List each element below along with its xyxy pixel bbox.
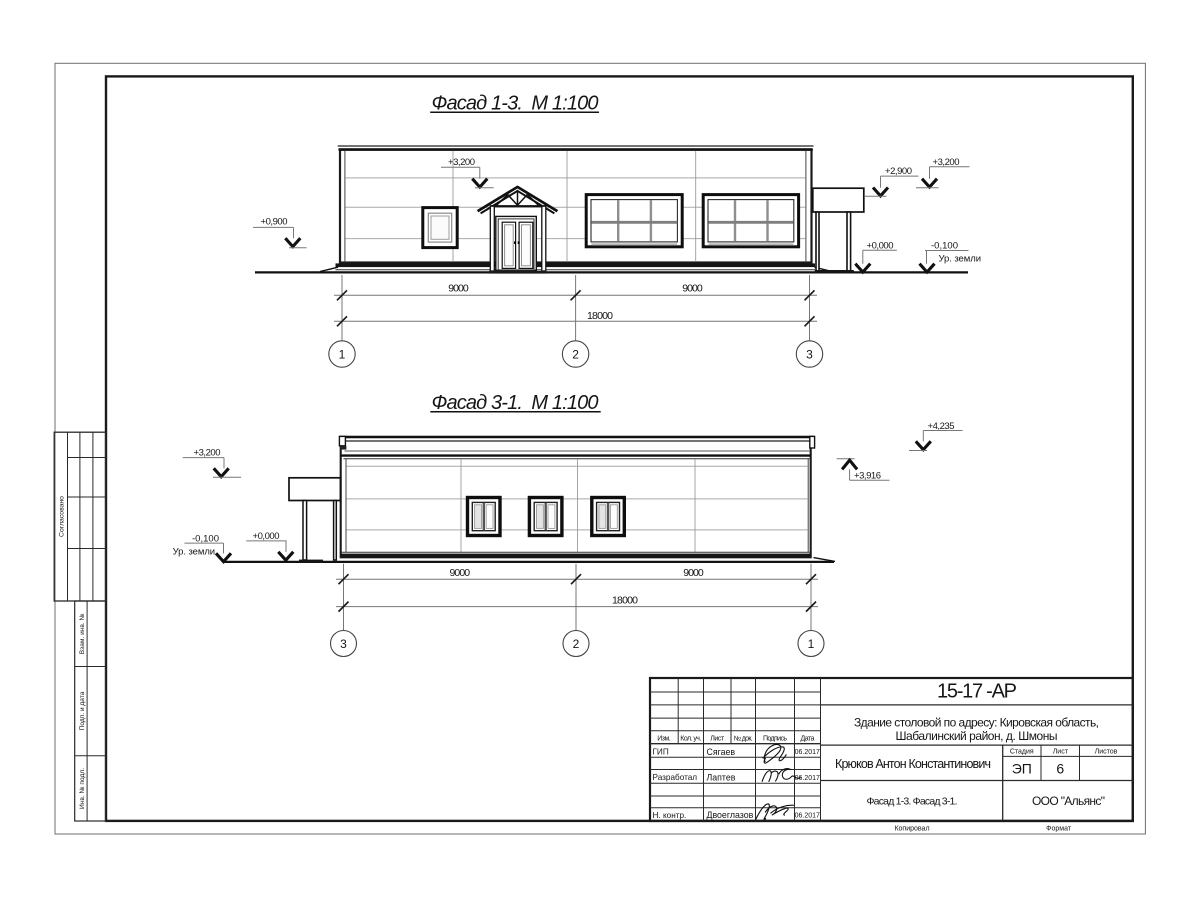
svg-text:Копировал: Копировал [894,826,929,833]
svg-text:2: 2 [573,637,580,651]
svg-text:18000: 18000 [612,595,638,607]
svg-text:Двоеглазов: Двоеглазов [707,810,754,820]
svg-text:Подпись: Подпись [763,736,787,743]
svg-text:Стадия: Стадия [1010,748,1034,755]
svg-text:ГИП: ГИП [653,748,669,757]
svg-text:Ур. земли: Ур. земли [173,547,216,558]
svg-text:Крюков Антон Константинович: Крюков Антон Константинович [835,757,991,771]
svg-text:Сягаев: Сягаев [707,747,736,757]
svg-text:2: 2 [572,347,579,361]
svg-text:06.2017: 06.2017 [795,749,820,756]
svg-text:ЭП: ЭП [1012,761,1032,777]
svg-text:Здание столовой по адресу: Кир: Здание столовой по адресу: Кировская обл… [854,715,1099,729]
svg-text:Н. контр.: Н. контр. [653,811,687,820]
svg-text:06.2017: 06.2017 [795,813,820,820]
svg-text:+0,900: +0,900 [261,217,288,228]
svg-text:1: 1 [339,347,346,361]
svg-text:Шабалинский район, д. Шмоны: Шабалинский район, д. Шмоны [896,729,1058,743]
svg-text:Фасад 1-3. Фасад 3-1.: Фасад 1-3. Фасад 3-1. [867,796,958,808]
svg-text:+2,900: +2,900 [885,166,912,177]
svg-text:9000: 9000 [682,283,703,295]
svg-text:+3,200: +3,200 [448,157,475,168]
svg-text:№ док.: № док. [734,736,753,743]
svg-text:3: 3 [806,347,813,361]
svg-text:+0,000: +0,000 [867,240,894,251]
svg-text:Подп. и дата: Подп. и дата [79,691,86,730]
svg-text:Фасад 3-1. М 1:100: Фасад 3-1. М 1:100 [432,392,599,414]
svg-text:9000: 9000 [448,283,469,295]
svg-text:Взам. инв. №: Взам. инв. № [79,613,86,654]
svg-text:Изм.: Изм. [657,736,671,743]
svg-text:3: 3 [340,637,347,651]
svg-text:1: 1 [808,637,815,651]
svg-text:Разработал: Разработал [653,773,698,782]
svg-text:15-17 -АР: 15-17 -АР [937,681,1017,703]
svg-text:9000: 9000 [683,567,704,579]
svg-text:ООО "Альянс": ООО "Альянс" [1032,794,1105,808]
svg-text:Лист: Лист [1053,748,1069,755]
svg-text:6: 6 [1056,761,1064,777]
svg-text:Инв. № подл.: Инв. № подл. [79,768,86,809]
svg-text:Дата: Дата [801,736,815,743]
svg-text:Фасад 1-3. М 1:100: Фасад 1-3. М 1:100 [432,93,599,115]
svg-text:Кол. уч.: Кол. уч. [680,736,701,743]
svg-text:Согласовано: Согласовано [59,496,66,537]
svg-text:Формат: Формат [1046,826,1072,833]
svg-text:18000: 18000 [587,310,613,322]
svg-text:+3,200: +3,200 [194,447,221,458]
svg-text:Лист: Лист [710,736,725,743]
svg-text:+3,916: +3,916 [854,471,881,482]
svg-text:-0,100: -0,100 [931,240,958,251]
svg-text:Листов: Листов [1095,748,1118,755]
svg-text:9000: 9000 [450,567,471,579]
svg-text:+3,200: +3,200 [933,157,960,168]
svg-text:Лаптев: Лаптев [707,772,736,782]
svg-text:Ур. земли: Ур. земли [939,254,982,265]
